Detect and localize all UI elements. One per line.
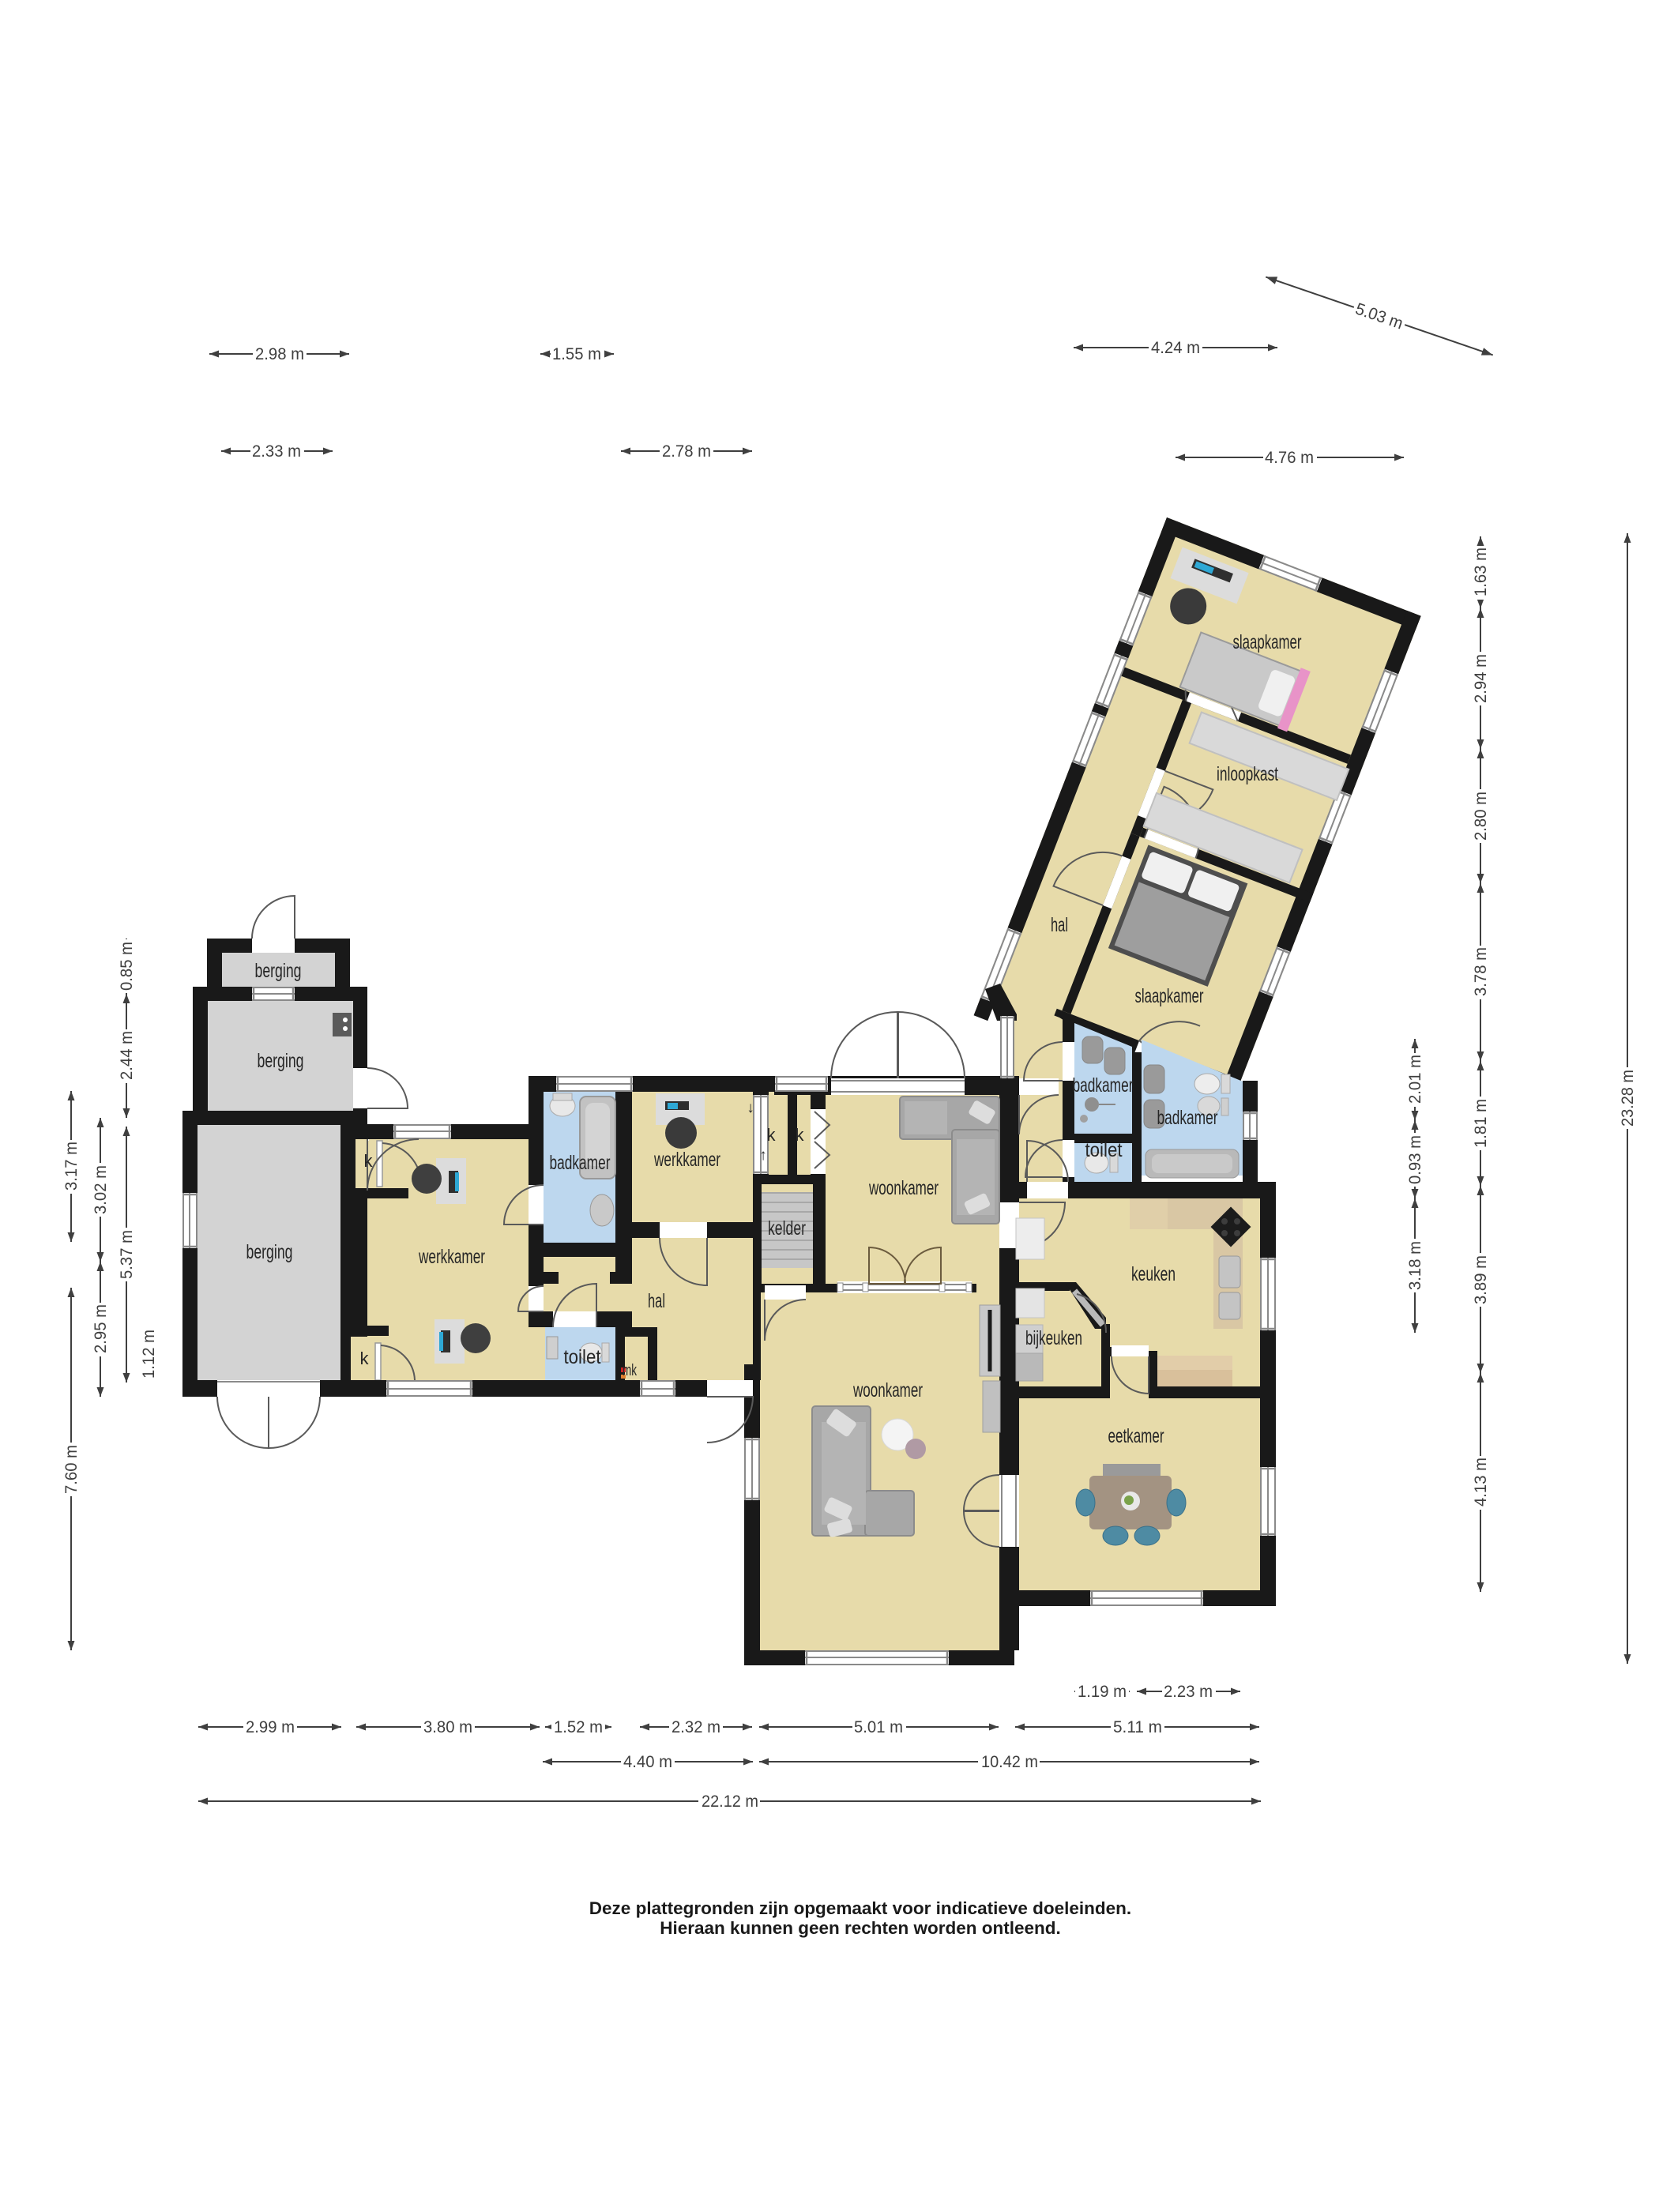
svg-text:toilet: toilet: [1085, 1139, 1123, 1161]
svg-text:2.94 m: 2.94 m: [1472, 654, 1490, 703]
svg-text:4.24 m: 4.24 m: [1151, 339, 1200, 357]
svg-text:2.23 m: 2.23 m: [1164, 1683, 1213, 1701]
svg-text:0.85 m: 0.85 m: [118, 942, 136, 991]
svg-text:werkkamer: werkkamer: [418, 1246, 485, 1268]
svg-text:bijkeuken: bijkeuken: [1025, 1327, 1082, 1349]
svg-text:↓: ↓: [747, 1100, 754, 1116]
svg-text:7.60 m: 7.60 m: [62, 1445, 81, 1494]
svg-text:2.99 m: 2.99 m: [246, 1718, 295, 1736]
svg-text:5.01 m: 5.01 m: [854, 1718, 903, 1736]
svg-text:3.78 m: 3.78 m: [1472, 947, 1490, 996]
svg-text:berging: berging: [258, 1050, 304, 1072]
svg-text:berging: berging: [255, 960, 302, 982]
svg-text:4.76 m: 4.76 m: [1265, 449, 1314, 467]
svg-text:5.37 m: 5.37 m: [118, 1230, 136, 1279]
svg-text:k: k: [767, 1125, 777, 1145]
svg-text:inloopkast: inloopkast: [1217, 763, 1278, 785]
svg-text:mk: mk: [623, 1362, 638, 1379]
svg-text:toilet: toilet: [564, 1346, 601, 1368]
svg-text:2.98 m: 2.98 m: [255, 345, 304, 363]
svg-text:hal: hal: [1051, 914, 1068, 936]
svg-text:k: k: [364, 1151, 374, 1171]
svg-text:woonkamer: woonkamer: [852, 1379, 923, 1401]
svg-text:Deze plattegronden zijn opgema: Deze plattegronden zijn opgemaakt voor i…: [589, 1898, 1131, 1918]
svg-text:3.02 m: 3.02 m: [92, 1165, 110, 1214]
svg-text:woonkamer: woonkamer: [868, 1177, 939, 1199]
svg-text:2.78 m: 2.78 m: [662, 442, 711, 461]
svg-text:2.32 m: 2.32 m: [671, 1718, 720, 1736]
svg-text:5.11 m: 5.11 m: [1113, 1718, 1162, 1736]
svg-text:k: k: [796, 1125, 805, 1145]
svg-text:slaapkamer: slaapkamer: [1233, 631, 1302, 653]
svg-text:hal: hal: [648, 1290, 665, 1312]
svg-text:3.18 m: 3.18 m: [1406, 1241, 1424, 1290]
svg-text:4.40 m: 4.40 m: [623, 1753, 672, 1771]
svg-text:k: k: [360, 1349, 370, 1368]
svg-text:werkkamer: werkkamer: [653, 1149, 720, 1171]
svg-text:1.52 m: 1.52 m: [554, 1718, 603, 1736]
svg-text:1.55 m: 1.55 m: [552, 345, 601, 363]
svg-text:3.89 m: 3.89 m: [1472, 1255, 1490, 1304]
svg-text:1.12 m: 1.12 m: [140, 1330, 158, 1379]
svg-text:4.13 m: 4.13 m: [1472, 1458, 1490, 1507]
svg-text:keuken: keuken: [1131, 1263, 1176, 1285]
svg-text:badkamer: badkamer: [550, 1152, 611, 1174]
svg-text:2.95 m: 2.95 m: [92, 1304, 110, 1353]
svg-text:1.19 m: 1.19 m: [1078, 1683, 1127, 1701]
svg-text:2.33 m: 2.33 m: [252, 442, 301, 461]
svg-text:slaapkamer: slaapkamer: [1135, 985, 1204, 1007]
svg-text:3.17 m: 3.17 m: [62, 1142, 81, 1191]
svg-text:badkamer: badkamer: [1073, 1074, 1134, 1097]
svg-text:berging: berging: [246, 1241, 293, 1263]
svg-text:10.42 m: 10.42 m: [981, 1753, 1038, 1771]
svg-text:2.44 m: 2.44 m: [118, 1031, 136, 1080]
svg-text:↑: ↑: [759, 1147, 767, 1164]
svg-text:23.28 m: 23.28 m: [1619, 1070, 1637, 1127]
svg-text:2.80 m: 2.80 m: [1472, 792, 1490, 841]
svg-text:2.01 m: 2.01 m: [1406, 1055, 1424, 1104]
svg-text:kelder: kelder: [768, 1217, 806, 1240]
svg-text:eetkamer: eetkamer: [1108, 1425, 1164, 1447]
svg-text:3.80 m: 3.80 m: [423, 1718, 472, 1736]
svg-text:1.81 m: 1.81 m: [1472, 1099, 1490, 1148]
svg-text:0.93 m: 0.93 m: [1406, 1135, 1424, 1184]
svg-text:1.63 m: 1.63 m: [1472, 547, 1490, 596]
svg-text:22.12 m: 22.12 m: [702, 1793, 758, 1811]
svg-text:Hieraan kunnen geen rechten wo: Hieraan kunnen geen rechten worden ontle…: [660, 1918, 1061, 1938]
svg-text:badkamer: badkamer: [1157, 1107, 1218, 1129]
